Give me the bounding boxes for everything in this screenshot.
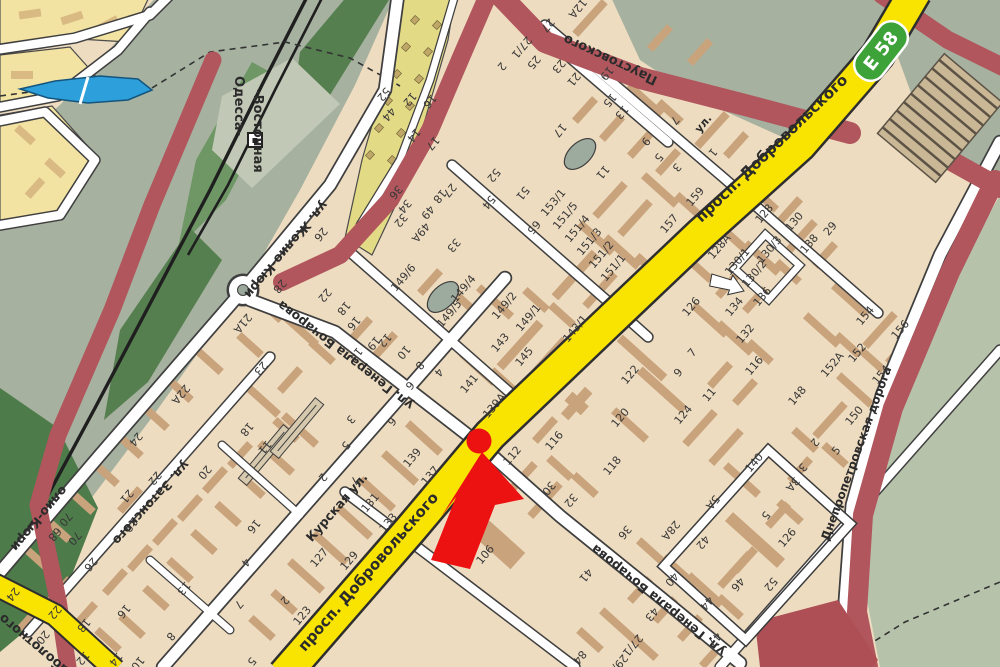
map-canvas[interactable]: Е 58 просп. Добровольскогопросп. Доброво… xyxy=(0,0,1000,667)
map-viewport[interactable]: Е 58 просп. Добровольскогопросп. Доброво… xyxy=(0,0,1000,667)
location-dot xyxy=(467,429,492,454)
street-name-label: Одесса- xyxy=(231,76,246,136)
street-name-label: -Восточная xyxy=(250,89,265,172)
